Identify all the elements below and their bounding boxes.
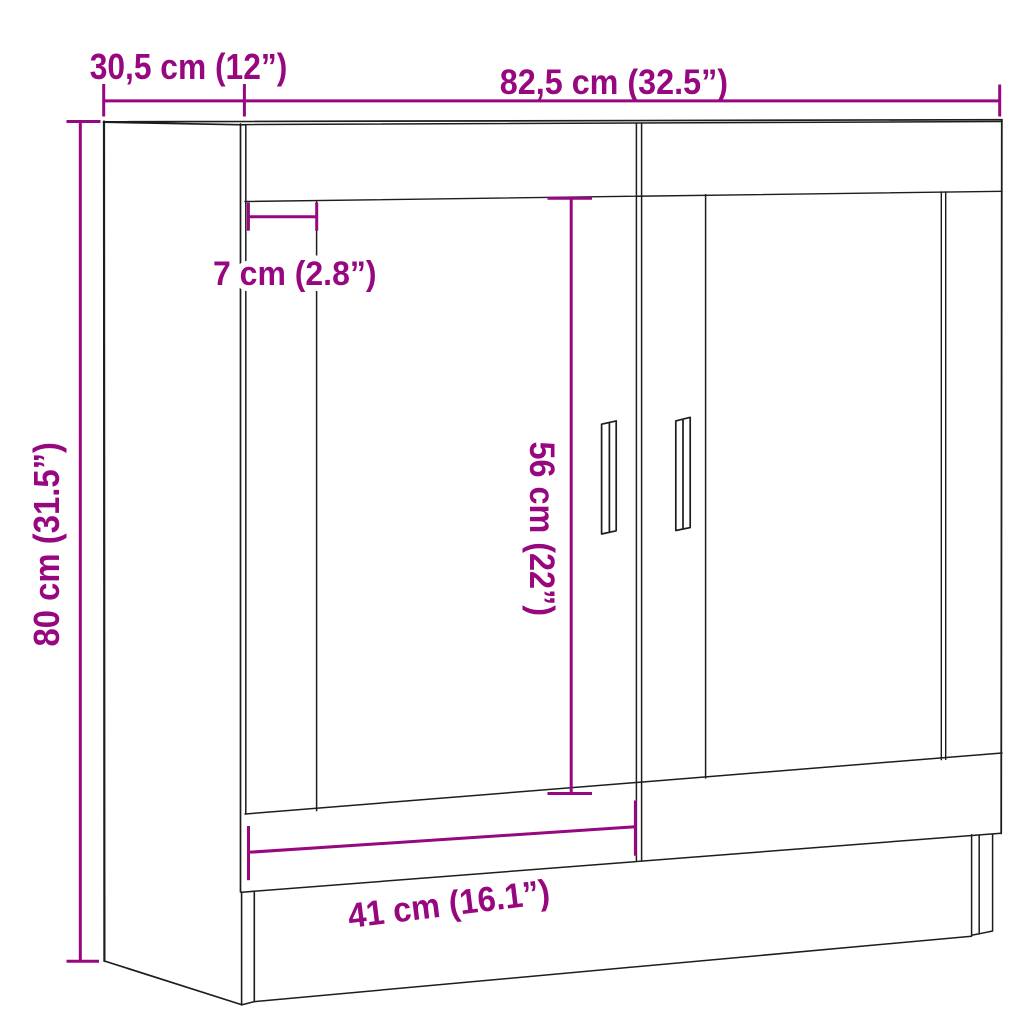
- svg-text:30,5 cm (12”): 30,5 cm (12”): [90, 47, 288, 87]
- svg-text:7 cm (2.8”): 7 cm (2.8”): [213, 255, 377, 293]
- svg-text:56 cm (22”): 56 cm (22”): [522, 442, 562, 617]
- svg-text:82,5 cm (32.5”): 82,5 cm (32.5”): [500, 62, 728, 102]
- svg-text:80 cm (31.5”): 80 cm (31.5”): [27, 442, 67, 647]
